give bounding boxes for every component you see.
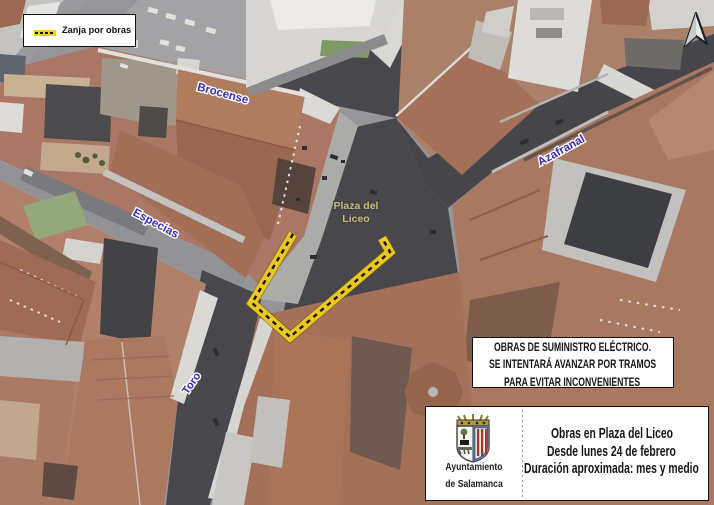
svg-text:Plaza del: Plaza del: [334, 200, 379, 212]
svg-text:Liceo: Liceo: [342, 213, 369, 225]
